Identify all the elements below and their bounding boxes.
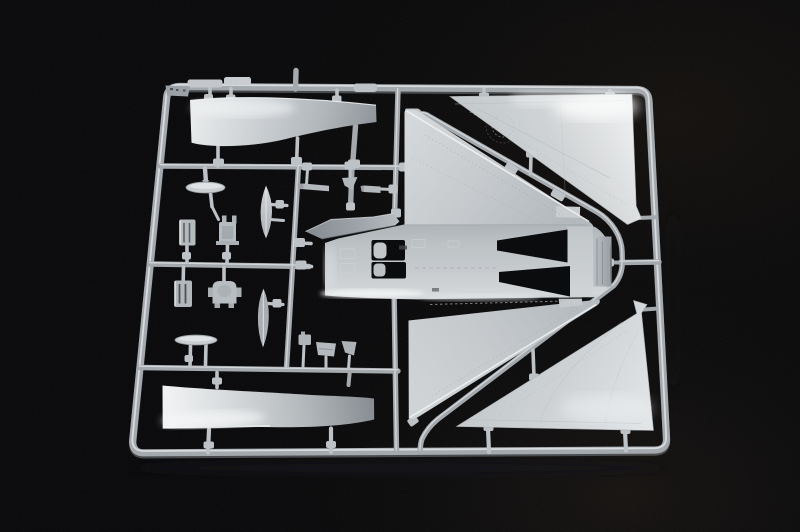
runner-connector xyxy=(621,262,660,263)
photo: Injection-molded model kit sprue of a de… xyxy=(0,0,800,532)
runner-stub-top xyxy=(296,71,297,90)
corner-label-tab xyxy=(166,86,191,97)
sprue-photo: Injection-molded model kit sprue of a de… xyxy=(0,0,800,532)
ribbed-hatch-2 xyxy=(174,281,192,308)
ribbed-hatch-1 xyxy=(179,220,196,246)
gear-door-oval-2 xyxy=(175,335,217,345)
table-reflection xyxy=(135,461,665,475)
